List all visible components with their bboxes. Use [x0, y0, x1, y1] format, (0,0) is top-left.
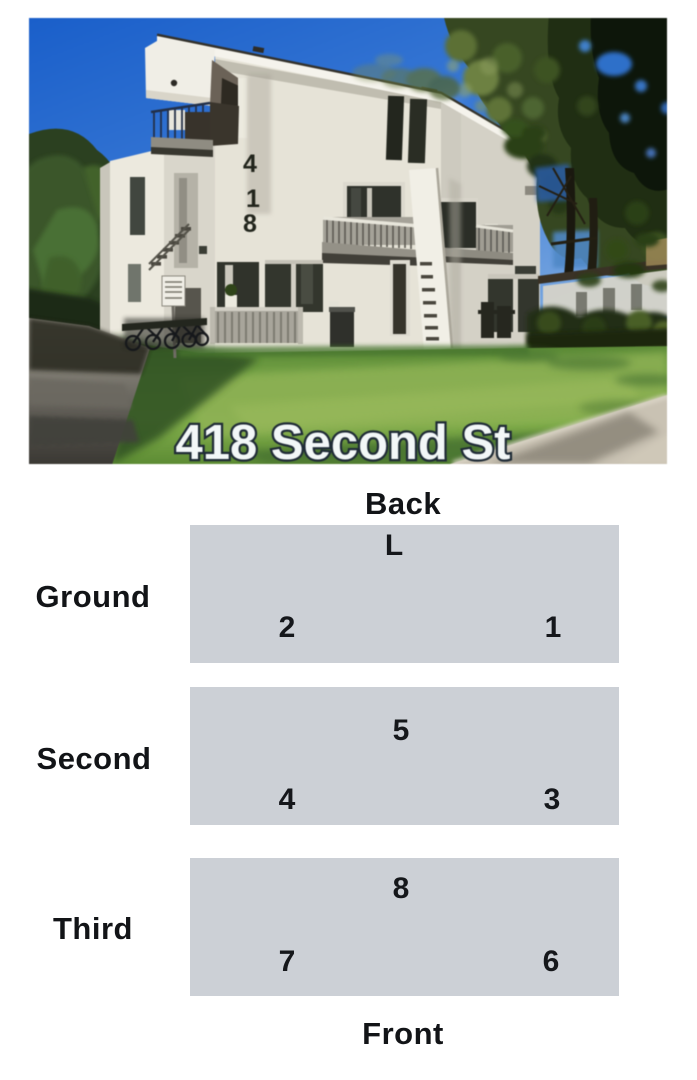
- svg-text:1: 1: [246, 185, 260, 213]
- svg-text:8: 8: [243, 210, 257, 238]
- svg-text:418 Second St: 418 Second St: [176, 416, 511, 464]
- svg-text:4: 4: [243, 150, 257, 178]
